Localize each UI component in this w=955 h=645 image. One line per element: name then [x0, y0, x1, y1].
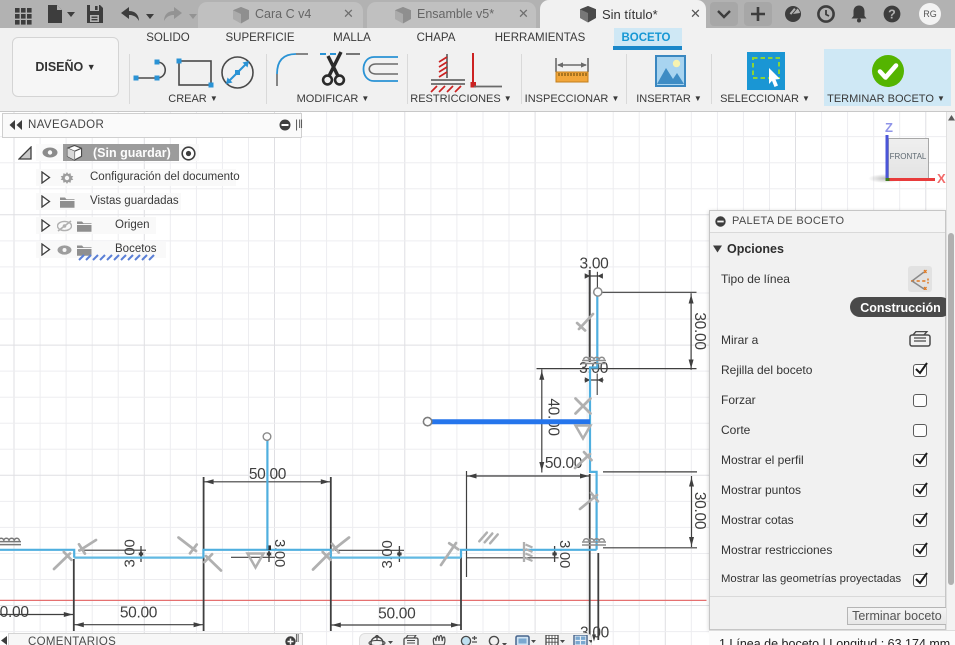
svg-text:30.00: 30.00 [691, 492, 708, 530]
svg-text:Z: Z [885, 120, 893, 135]
svg-text:3.00: 3.00 [556, 540, 573, 568]
svg-text:50.00: 50.00 [0, 604, 29, 621]
svg-text:X: X [937, 171, 946, 186]
svg-text:3.00: 3.00 [122, 540, 139, 568]
svg-text:50.00: 50.00 [378, 606, 416, 623]
svg-text:50.00: 50.00 [545, 455, 583, 472]
svg-text:3.00: 3.00 [580, 256, 610, 273]
svg-text:50.00: 50.00 [120, 605, 158, 622]
svg-text:40.00: 40.00 [545, 398, 562, 436]
svg-text:?: ? [888, 7, 896, 21]
svg-text:30.00: 30.00 [691, 312, 708, 350]
svg-text:3.00: 3.00 [379, 541, 396, 569]
svg-text:3.00: 3.00 [271, 539, 288, 567]
